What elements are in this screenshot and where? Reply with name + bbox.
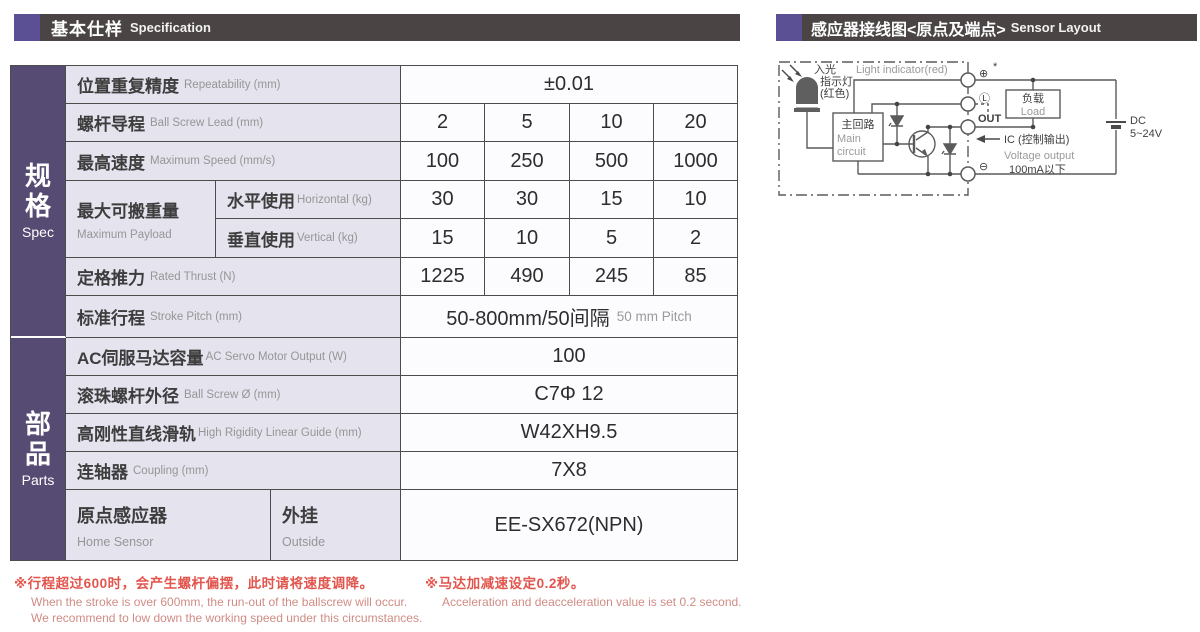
value-cell: 245: [570, 258, 654, 296]
value-cell: 30: [485, 181, 570, 219]
label-zh: 螺杆导程: [77, 110, 145, 135]
footnote-acceleration: ※马达加减速设定0.2秒。 Acceleration and deacceler…: [425, 572, 742, 609]
sidebar-spec-zh: 规格: [23, 162, 53, 220]
specification-table: 规格 Spec 部品 Parts 位置重复精度 Repeatability (m…: [10, 65, 738, 561]
dc-label: DC: [1130, 115, 1146, 127]
light-indicator-en: Light indicator(red): [856, 64, 948, 76]
value-cell: 85: [654, 258, 738, 296]
label-en: Coupling (mm): [133, 465, 208, 477]
label-zh: 滚珠螺杆外径: [77, 382, 179, 407]
row-label-max-payload: 最大可搬重量 Maximum Payload: [66, 181, 216, 258]
row-label-servo-output: AC伺服马达容量 AC Servo Motor Output (W): [66, 338, 401, 376]
value-coupling: 7X8: [401, 452, 738, 490]
row-label-stroke: 标准行程 Stroke Pitch (mm): [66, 296, 401, 338]
value-linear-guide: W42XH9.5: [401, 414, 738, 452]
value-cell: 1000: [654, 142, 738, 181]
light-arrows: [782, 65, 802, 82]
value-cell: 100: [401, 142, 485, 181]
terminal-l-symbol: Ⓛ: [979, 92, 990, 105]
stroke-value: 50-800mm/50间隔: [446, 302, 609, 331]
load-en: Load: [1021, 106, 1045, 118]
label-zh: 外挂: [282, 502, 318, 528]
label-zh: 标准行程: [77, 304, 145, 329]
sidebar-parts-zh: 部品: [23, 410, 53, 468]
label-en: Ball Screw Ø (mm): [184, 389, 280, 401]
label-zh: 高刚性直线滑轨: [77, 420, 196, 445]
ic-label: IC (控制输出): [1004, 132, 1069, 146]
terminal-out-label: OUT: [978, 113, 1002, 125]
header-bar: 基本仕样 Specification: [40, 14, 740, 41]
label-zh: 定格推力: [77, 264, 145, 289]
header-title-en: Sensor Layout: [1011, 20, 1101, 35]
label-zh: 位置重复精度: [77, 72, 179, 97]
terminal-star: *: [993, 61, 998, 73]
value-cell: 15: [401, 219, 485, 258]
main-circuit-en2: circuit: [837, 146, 866, 158]
header-accent-square: [776, 14, 802, 41]
footnote-zh: ※马达加减速设定0.2秒。: [425, 572, 742, 592]
footnote-en-line2: We recommend to low down the working spe…: [31, 611, 422, 625]
value-cell: 10: [570, 104, 654, 142]
light-indicator-zh3: (红色): [820, 86, 849, 100]
row-label-max-speed: 最高速度 Maximum Speed (mm/s): [66, 142, 401, 181]
label-en: High Rigidity Linear Guide (mm): [198, 427, 362, 439]
value-repeatability: ±0.01: [401, 66, 738, 104]
label-zh: 最高速度: [77, 149, 145, 174]
led-base: [794, 108, 820, 112]
row-label-coupling: 连轴器 Coupling (mm): [66, 452, 401, 490]
footnote-en-line1: Acceleration and deacceleration value is…: [442, 595, 742, 609]
label-en: Ball Screw Lead (mm): [150, 117, 263, 129]
header-accent-square: [14, 14, 40, 41]
header-bar: 感应器接线图<原点及端点> Sensor Layout: [802, 14, 1197, 41]
label-en: Repeatability (mm): [184, 79, 281, 91]
row-label-outside: 外挂 Outside: [271, 490, 401, 561]
header-title-en: Specification: [130, 20, 211, 35]
label-zh: AC伺服马达容量: [77, 344, 204, 369]
value-cell: 5: [485, 104, 570, 142]
sidebar-section-parts: 部品 Parts: [11, 338, 66, 561]
label-zh: 原点感应器: [77, 502, 167, 528]
value-cell: 2: [401, 104, 485, 142]
value-servo-output: 100: [401, 338, 738, 376]
value-cell: 15: [570, 181, 654, 219]
label-zh: 连轴器: [77, 458, 128, 483]
led-icon: [796, 77, 818, 108]
label-en: Stroke Pitch (mm): [150, 311, 242, 323]
ic-arrowhead: [976, 135, 985, 143]
row-label-ball-screw-dia: 滚珠螺杆外径 Ball Screw Ø (mm): [66, 376, 401, 414]
value-cell: 5: [570, 219, 654, 258]
footnote-zh: ※行程超过600时，会产生螺杆偏摆，此时请将速度调降。: [14, 572, 422, 592]
value-ball-screw-dia: C7Φ 12: [401, 376, 738, 414]
row-label-vertical: 垂直使用 Vertical (kg): [216, 219, 401, 258]
row-label-rated-thrust: 定格推力 Rated Thrust (N): [66, 258, 401, 296]
spec-sheet-page: 基本仕样 Specification 感应器接线图<原点及端点> Sensor …: [0, 0, 1200, 632]
label-en: Maximum Speed (mm/s): [150, 155, 275, 167]
value-cell: 500: [570, 142, 654, 181]
light-indicator-zh2: 指示灯: [820, 74, 853, 88]
sensor-wiring-diagram: 主回路 Main circuit 负载 Load DC 5~24V ⊕ * Ⓛ …: [776, 56, 1200, 208]
label-zh: 最大可搬重量: [77, 197, 179, 222]
row-label-home-sensor: 原点感应器 Home Sensor: [66, 490, 271, 561]
header-title-zh: 感应器接线图<原点及端点>: [811, 16, 1006, 40]
specification-header: 基本仕样 Specification: [14, 14, 740, 41]
row-label-repeatability: 位置重复精度 Repeatability (mm): [66, 66, 401, 104]
label-en: Vertical (kg): [297, 232, 358, 244]
light-indicator-zh1: 入光: [814, 62, 836, 76]
sidebar-parts-en: Parts: [22, 472, 55, 488]
value-home-sensor: EE-SX672(NPN): [401, 490, 738, 561]
value-cell: 10: [654, 181, 738, 219]
label-en: AC Servo Motor Output (W): [206, 351, 347, 363]
terminal-minus-symbol: ⊖: [979, 161, 988, 173]
row-label-ball-screw-lead: 螺杆导程 Ball Screw Lead (mm): [66, 104, 401, 142]
sensor-layout-header: 感应器接线图<原点及端点> Sensor Layout: [776, 14, 1197, 41]
value-cell: 490: [485, 258, 570, 296]
value-cell: 2: [654, 219, 738, 258]
footnote-stroke-warning: ※行程超过600时，会产生螺杆偏摆，此时请将速度调降。 When the str…: [14, 572, 422, 625]
current-limit-label: 100mA以下: [1009, 164, 1066, 176]
load-zh: 负载: [1022, 91, 1044, 105]
header-title-zh: 基本仕样: [51, 15, 123, 40]
label-en: Rated Thrust (N): [150, 271, 235, 283]
label-en: Horizontal (kg): [297, 194, 372, 206]
dc-voltage: 5~24V: [1130, 128, 1163, 140]
wiring-diagram-svg: 主回路 Main circuit 负载 Load DC 5~24V ⊕ * Ⓛ …: [776, 56, 1200, 208]
sidebar-section-spec: 规格 Spec: [11, 66, 66, 338]
label-zh: 垂直使用: [227, 226, 295, 251]
stroke-value-en: 50 mm Pitch: [617, 309, 692, 324]
row-label-linear-guide: 高刚性直线滑轨 High Rigidity Linear Guide (mm): [66, 414, 401, 452]
sidebar-spec-en: Spec: [22, 224, 54, 240]
value-stroke: 50-800mm/50间隔 50 mm Pitch: [401, 296, 738, 338]
value-cell: 250: [485, 142, 570, 181]
row-label-horizontal: 水平使用 Horizontal (kg): [216, 181, 401, 219]
label-en: Home Sensor: [77, 535, 153, 549]
battery-icon: [1106, 122, 1126, 127]
voltage-output-label: Voltage output: [1004, 150, 1074, 162]
label-en: Outside: [282, 535, 325, 549]
led-band: [796, 104, 818, 108]
label-en: Maximum Payload: [77, 229, 172, 241]
main-circuit-zh: 主回路: [842, 118, 875, 131]
label-zh: 水平使用: [227, 187, 295, 212]
terminal-plus-symbol: ⊕: [979, 68, 988, 80]
footnote-en-line1: When the stroke is over 600mm, the run-o…: [31, 595, 422, 609]
value-cell: 20: [654, 104, 738, 142]
main-circuit-en1: Main: [837, 133, 861, 145]
value-cell: 30: [401, 181, 485, 219]
value-cell: 1225: [401, 258, 485, 296]
value-cell: 10: [485, 219, 570, 258]
